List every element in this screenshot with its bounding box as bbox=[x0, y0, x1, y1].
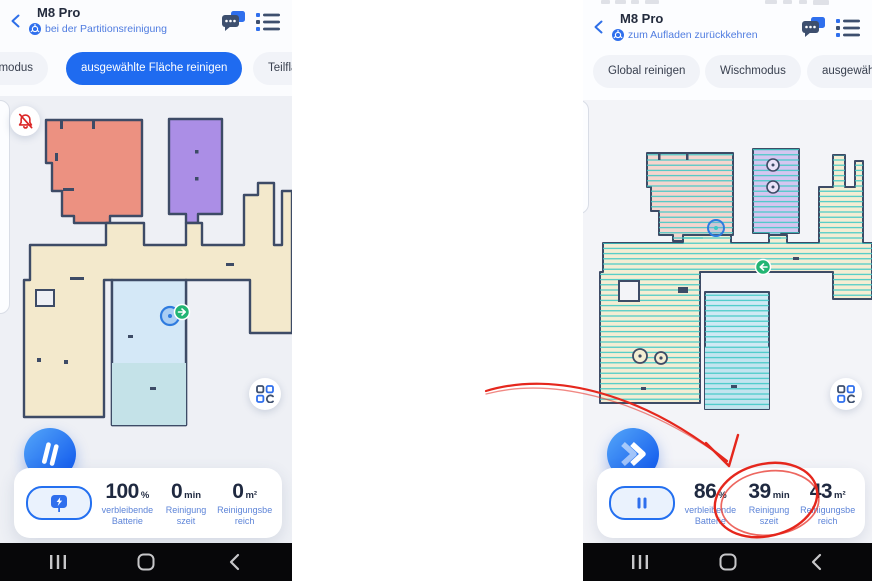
rooms-grid-icon bbox=[837, 385, 855, 403]
right-screenshot: M8 Pro zum Aufladen zurückkehren Global … bbox=[583, 0, 872, 581]
rooms-grid-icon bbox=[256, 385, 274, 403]
back-button[interactable] bbox=[591, 19, 607, 35]
tab-clean-selected-area[interactable]: ausgewählte Fläche reinigen bbox=[66, 52, 242, 85]
statusbar-remnant bbox=[799, 0, 807, 4]
statusbar-remnant bbox=[765, 0, 777, 4]
pause-icon bbox=[635, 496, 649, 510]
home-button[interactable] bbox=[134, 552, 158, 572]
home-button[interactable] bbox=[716, 552, 740, 572]
device-status: zum Aufladen zurückkehren bbox=[612, 29, 758, 41]
device-title: M8 Pro bbox=[37, 5, 80, 20]
room-select-button[interactable] bbox=[249, 378, 281, 410]
statusbar-remnant bbox=[631, 0, 639, 4]
statusbar-remnant bbox=[783, 0, 792, 4]
task-list-button[interactable] bbox=[835, 17, 861, 41]
recents-button[interactable] bbox=[46, 552, 70, 572]
floor-map-right[interactable] bbox=[583, 147, 872, 412]
fast-forward-icon bbox=[617, 441, 649, 467]
android-navbar bbox=[583, 543, 872, 581]
tab-partial-area[interactable]: Teilfläc bbox=[253, 52, 292, 85]
left-screenshot: M8 Pro bei der Partitionsreinigung hmodu… bbox=[0, 0, 292, 581]
mute-button[interactable] bbox=[10, 106, 40, 136]
bell-muted-icon bbox=[16, 112, 35, 131]
recents-button[interactable] bbox=[628, 552, 652, 572]
chat-bubble-icon bbox=[221, 10, 247, 34]
back-nav-button[interactable] bbox=[804, 552, 828, 572]
statusbar-remnant bbox=[813, 0, 829, 5]
robot-status-icon bbox=[29, 23, 41, 35]
statusbar-remnant bbox=[645, 0, 659, 4]
chat-button[interactable] bbox=[801, 16, 827, 40]
charging-plug-icon bbox=[48, 494, 70, 513]
device-title: M8 Pro bbox=[620, 11, 663, 26]
recharge-button[interactable] bbox=[26, 486, 92, 520]
android-navbar bbox=[0, 543, 292, 581]
statusbar-remnant bbox=[615, 0, 626, 4]
room-select-button[interactable] bbox=[830, 378, 862, 410]
chat-bubble-icon bbox=[801, 16, 827, 40]
back-nav-button[interactable] bbox=[222, 552, 246, 572]
stat-battery: 86% verbleibendeBatterie bbox=[681, 480, 740, 527]
dock-marker bbox=[756, 260, 771, 275]
stats-card: 86% verbleibendeBatterie 39min Reinigung… bbox=[597, 468, 865, 538]
tab-global-clean[interactable]: Global reinigen bbox=[593, 55, 700, 88]
stat-cleaning-time: 39min Reinigungszeit bbox=[740, 480, 799, 527]
statusbar-remnant bbox=[601, 0, 610, 4]
pause-pill-button[interactable] bbox=[609, 486, 675, 520]
device-status: bei der Partitionsreinigung bbox=[29, 23, 167, 35]
task-list-button[interactable] bbox=[255, 11, 281, 35]
dock-marker bbox=[175, 305, 190, 320]
list-icon bbox=[835, 17, 861, 39]
pause-icon bbox=[37, 441, 63, 467]
back-button[interactable] bbox=[8, 13, 24, 29]
stat-cleaning-area: 43m² Reinigungsbereich bbox=[798, 480, 857, 527]
chat-button[interactable] bbox=[221, 10, 247, 34]
screenshot-canvas: M8 Pro bei der Partitionsreinigung hmodu… bbox=[0, 0, 872, 581]
tab-mode-cut[interactable]: hmodus bbox=[0, 52, 48, 85]
stat-battery: 100% verbleibendeBatterie bbox=[98, 480, 157, 527]
tab-mop-mode[interactable]: Wischmodus bbox=[705, 55, 801, 88]
stats-card: 100% verbleibendeBatterie 0min Reinigung… bbox=[14, 468, 282, 538]
stat-cleaning-time: 0min Reinigungszeit bbox=[157, 480, 216, 527]
robot-status-icon bbox=[612, 29, 624, 41]
list-icon bbox=[255, 11, 281, 33]
stat-cleaning-area: 0m² Reinigungsbereich bbox=[215, 480, 274, 527]
tab-selected-area-cut[interactable]: ausgewähl bbox=[807, 55, 872, 88]
floor-map-left[interactable] bbox=[0, 95, 292, 460]
